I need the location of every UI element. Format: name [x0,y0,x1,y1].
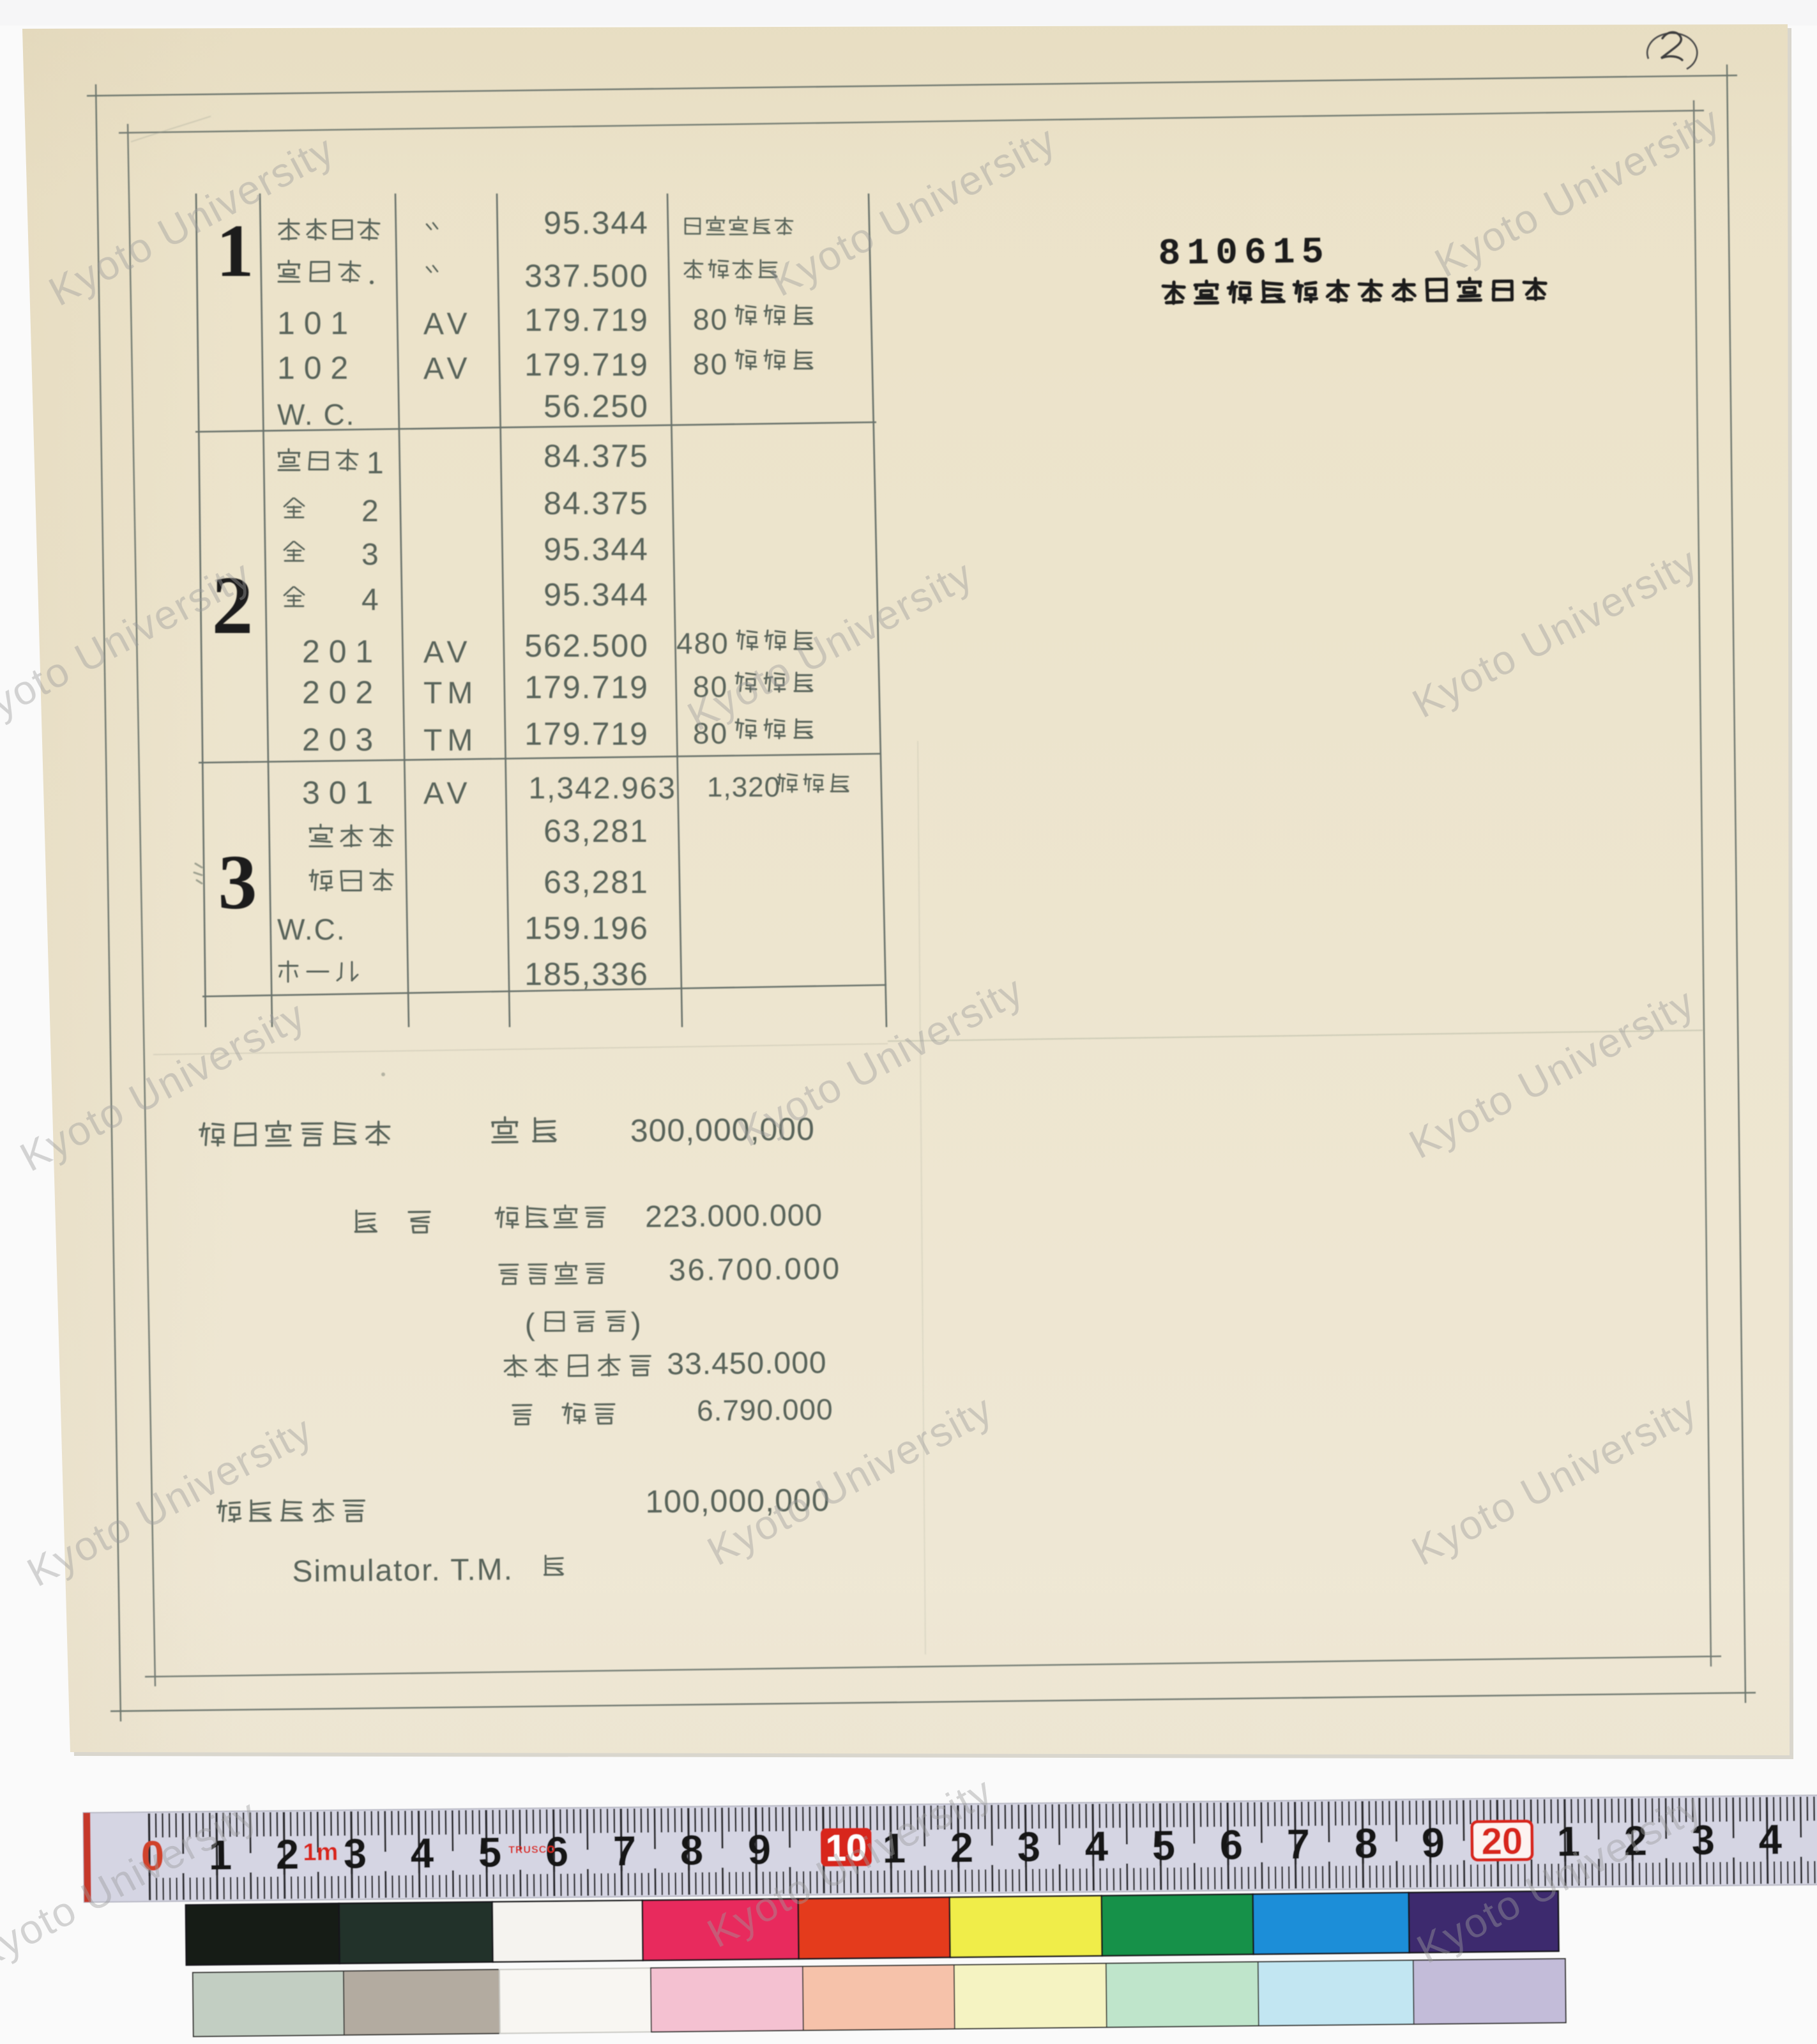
svg-text:84.375: 84.375 [544,485,649,521]
svg-text:2: 2 [361,494,380,528]
svg-text:W. C.: W. C. [277,398,355,431]
svg-text:1 0 2: 1 0 2 [277,350,348,386]
svg-text:2 0 3: 2 0 3 [302,722,373,758]
svg-text:63,281: 63,281 [544,864,649,900]
svg-text:9: 9 [747,1826,771,1873]
svg-text:8: 8 [1354,1819,1378,1866]
svg-text:3: 3 [218,839,257,926]
svg-text:20: 20 [1481,1820,1523,1863]
svg-text:7: 7 [612,1827,636,1874]
svg-text:W.C.: W.C. [277,913,346,946]
svg-text:TRUSCO: TRUSCO [508,1845,556,1856]
svg-text:36.700.000: 36.700.000 [669,1252,842,1288]
svg-text:AV: AV [423,352,472,386]
svg-text:AV: AV [423,777,472,811]
svg-text:95.344: 95.344 [544,531,649,567]
svg-text:6.790.000: 6.790.000 [697,1392,833,1427]
svg-text:(: ( [524,1308,535,1342]
svg-text:179.719: 179.719 [524,716,649,752]
svg-text:4: 4 [1758,1815,1783,1863]
svg-text:3: 3 [1017,1823,1040,1870]
svg-text:): ) [630,1307,641,1341]
svg-text:337.500: 337.500 [524,258,649,294]
svg-text:1,320: 1,320 [707,772,780,803]
svg-text:56.250: 56.250 [544,388,649,424]
svg-text:5: 5 [478,1828,501,1875]
svg-text:4: 4 [361,583,380,617]
svg-text:1 0 1: 1 0 1 [277,305,348,341]
svg-text:179.719: 179.719 [524,347,649,383]
svg-text:3 0 1: 3 0 1 [302,775,373,811]
svg-text:179.719: 179.719 [524,669,649,705]
svg-text:1: 1 [367,446,385,480]
svg-text:223.000.000: 223.000.000 [645,1198,823,1234]
svg-text:TM: TM [423,676,478,710]
svg-text:179.719: 179.719 [524,302,649,338]
svg-text:84.375: 84.375 [544,438,649,474]
svg-text:2 0 2: 2 0 2 [302,675,373,710]
svg-text:9: 9 [1421,1819,1445,1866]
svg-text:AV: AV [423,307,472,341]
svg-text:185,336: 185,336 [524,956,649,992]
svg-text:4: 4 [1084,1822,1109,1870]
svg-text:63,281: 63,281 [544,813,649,849]
svg-text:80: 80 [693,303,728,336]
svg-text:4: 4 [410,1829,434,1876]
svg-text:3: 3 [343,1830,367,1877]
svg-text:1m: 1m [303,1839,338,1866]
svg-text:95.344: 95.344 [544,577,649,613]
svg-text:2: 2 [275,1831,299,1878]
svg-text:80: 80 [693,347,728,381]
svg-text:2 0 1: 2 0 1 [302,634,373,669]
svg-text:562.500: 562.500 [524,628,649,664]
svg-text:480: 480 [676,627,729,660]
svg-text:Simulator. T.M.: Simulator. T.M. [292,1553,513,1589]
svg-text:810615: 810615 [1158,232,1330,275]
svg-text:TM: TM [423,724,478,758]
svg-text:6: 6 [1219,1821,1243,1868]
svg-text:AV: AV [423,636,472,669]
svg-text:1,342.963: 1,342.963 [528,772,676,805]
svg-text:7: 7 [1286,1820,1310,1868]
svg-text:33.450.000: 33.450.000 [667,1346,827,1381]
svg-text:3: 3 [361,538,380,572]
svg-text:5: 5 [1152,1822,1175,1869]
svg-text:159.196: 159.196 [524,910,649,946]
svg-text:95.344: 95.344 [544,205,649,241]
svg-text:8: 8 [680,1826,703,1873]
